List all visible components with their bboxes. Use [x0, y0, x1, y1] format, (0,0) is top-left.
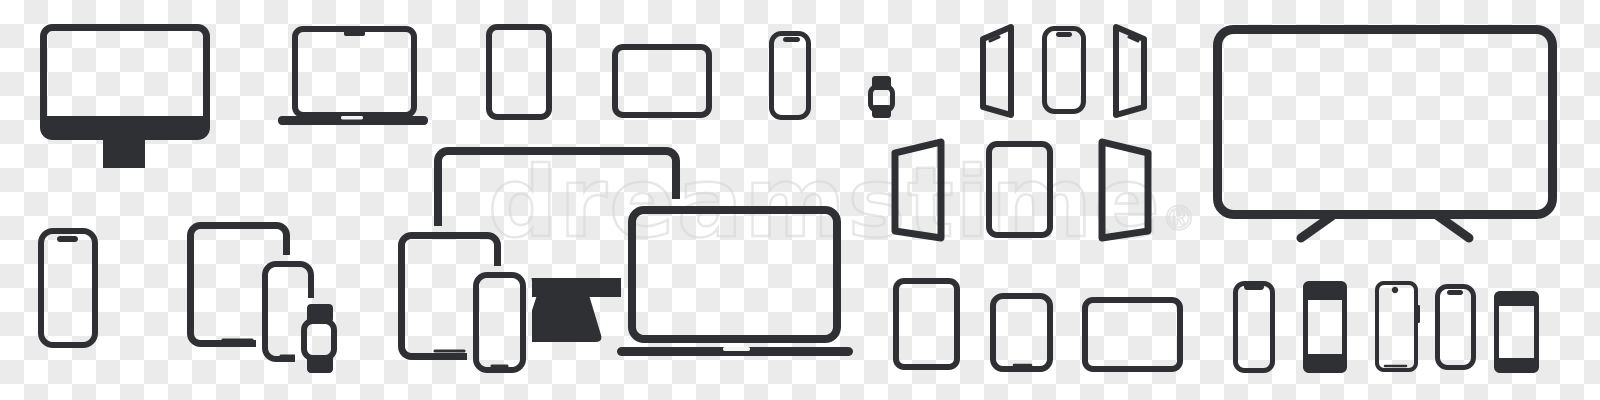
phone-punch-hole-icon	[1377, 283, 1420, 370]
responsive-devices-group	[402, 151, 854, 370]
phone-pill-notch-icon	[1438, 287, 1474, 368]
phone-solid-bezel-icon	[1303, 281, 1347, 373]
tablet-portrait-icon	[489, 27, 549, 117]
tablet-small-icon	[993, 296, 1050, 369]
desktop-monitor-icon	[42, 28, 208, 169]
laptop-icon	[278, 29, 428, 125]
group-monitor-icon	[436, 151, 678, 342]
smart-tv-icon	[1218, 30, 1553, 239]
tablet-landscape-2-icon	[1085, 300, 1180, 369]
tablet-landscape-icon	[615, 47, 709, 115]
tablet-angled-right-icon	[1102, 142, 1148, 238]
tablet-front-icon	[989, 144, 1050, 235]
tablet-angled-left-icon	[895, 142, 941, 238]
phone-dark-bezel-icon	[1494, 291, 1539, 373]
group-tablet-icon	[191, 226, 287, 344]
smartwatch-icon	[871, 76, 893, 118]
phone-notch-icon	[1236, 283, 1273, 371]
smartphone-angled-right-icon	[1116, 27, 1144, 115]
smartphone-icon	[772, 34, 809, 118]
smartphone-angled-left-icon	[983, 27, 1011, 115]
smartphone-2-icon	[41, 231, 95, 345]
device-icon-set	[0, 0, 1600, 400]
transparent-checkerboard-background: dreamstime®	[0, 0, 1600, 400]
tablet-phone-watch-group	[191, 226, 335, 374]
tablet-portrait-2-icon	[896, 281, 957, 367]
smartphone-front-icon	[1045, 29, 1084, 112]
